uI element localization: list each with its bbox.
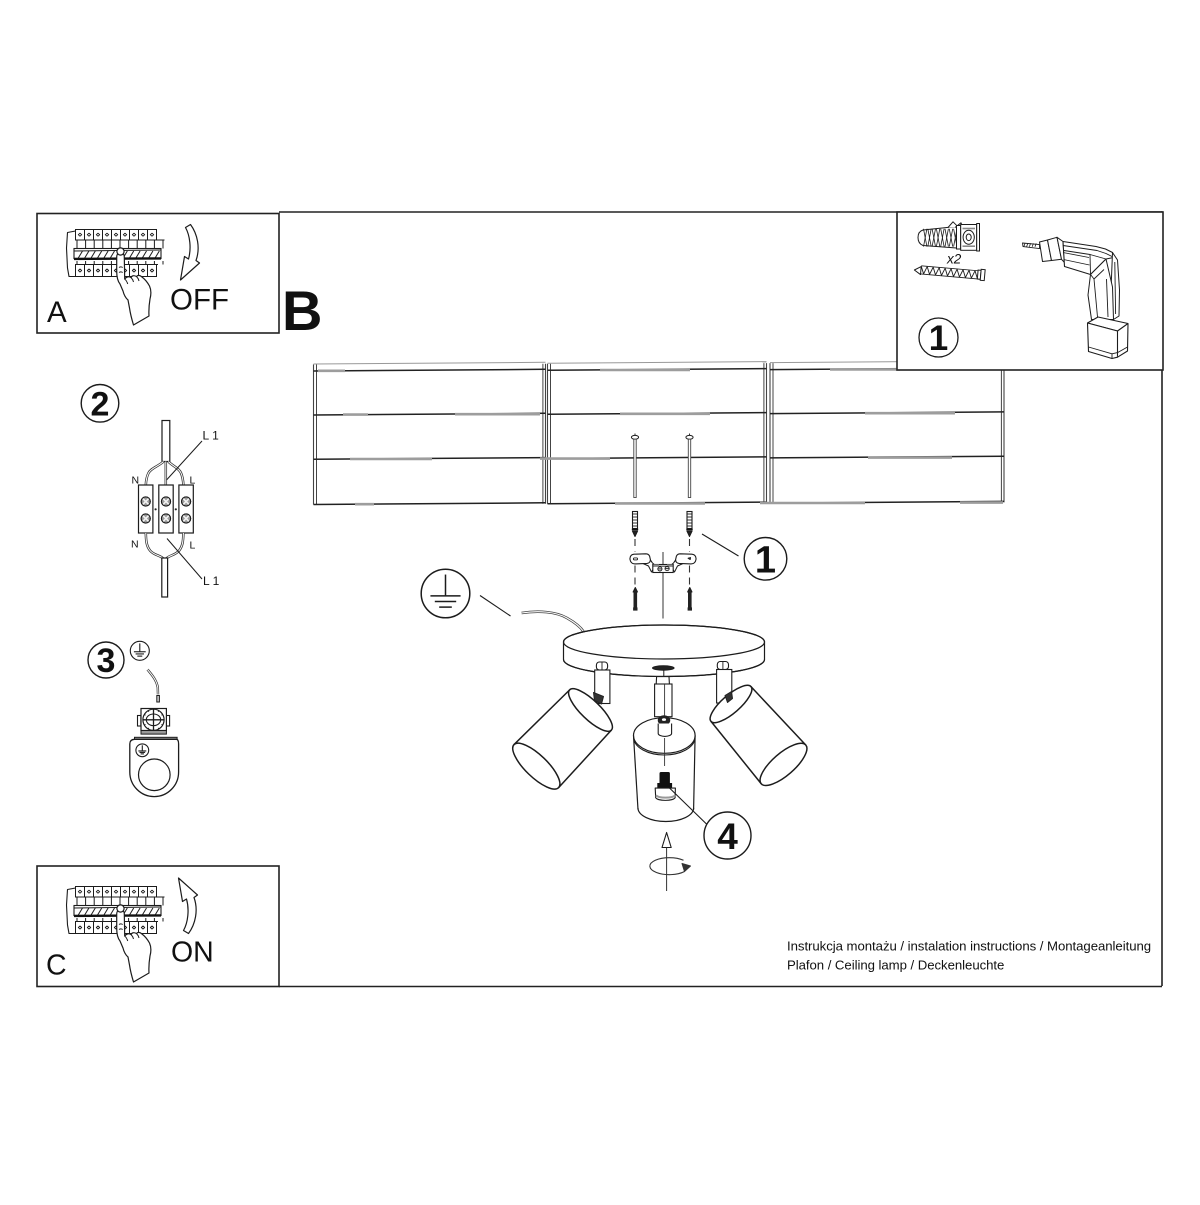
svg-text:ON: ON (171, 937, 214, 969)
svg-text:2: 2 (91, 386, 110, 424)
svg-text:Plafon / Ceiling lamp / Decken: Plafon / Ceiling lamp / Deckenleuchte (787, 958, 1004, 973)
svg-text:L 1: L 1 (203, 574, 220, 588)
svg-text:4: 4 (717, 816, 738, 857)
svg-text:B: B (282, 279, 322, 342)
svg-text:L 1: L 1 (203, 429, 220, 443)
svg-text:1: 1 (929, 319, 948, 358)
svg-text:N: N (131, 539, 139, 551)
svg-text:A: A (47, 296, 67, 329)
svg-text:1: 1 (755, 540, 776, 582)
svg-text:Instrukcja montażu / instalati: Instrukcja montażu / instalation instruc… (787, 939, 1151, 954)
svg-text:L: L (190, 540, 196, 552)
svg-text:OFF: OFF (170, 284, 229, 317)
svg-text:3: 3 (97, 642, 116, 680)
svg-text:x2: x2 (946, 252, 962, 267)
svg-text:C: C (46, 950, 67, 982)
